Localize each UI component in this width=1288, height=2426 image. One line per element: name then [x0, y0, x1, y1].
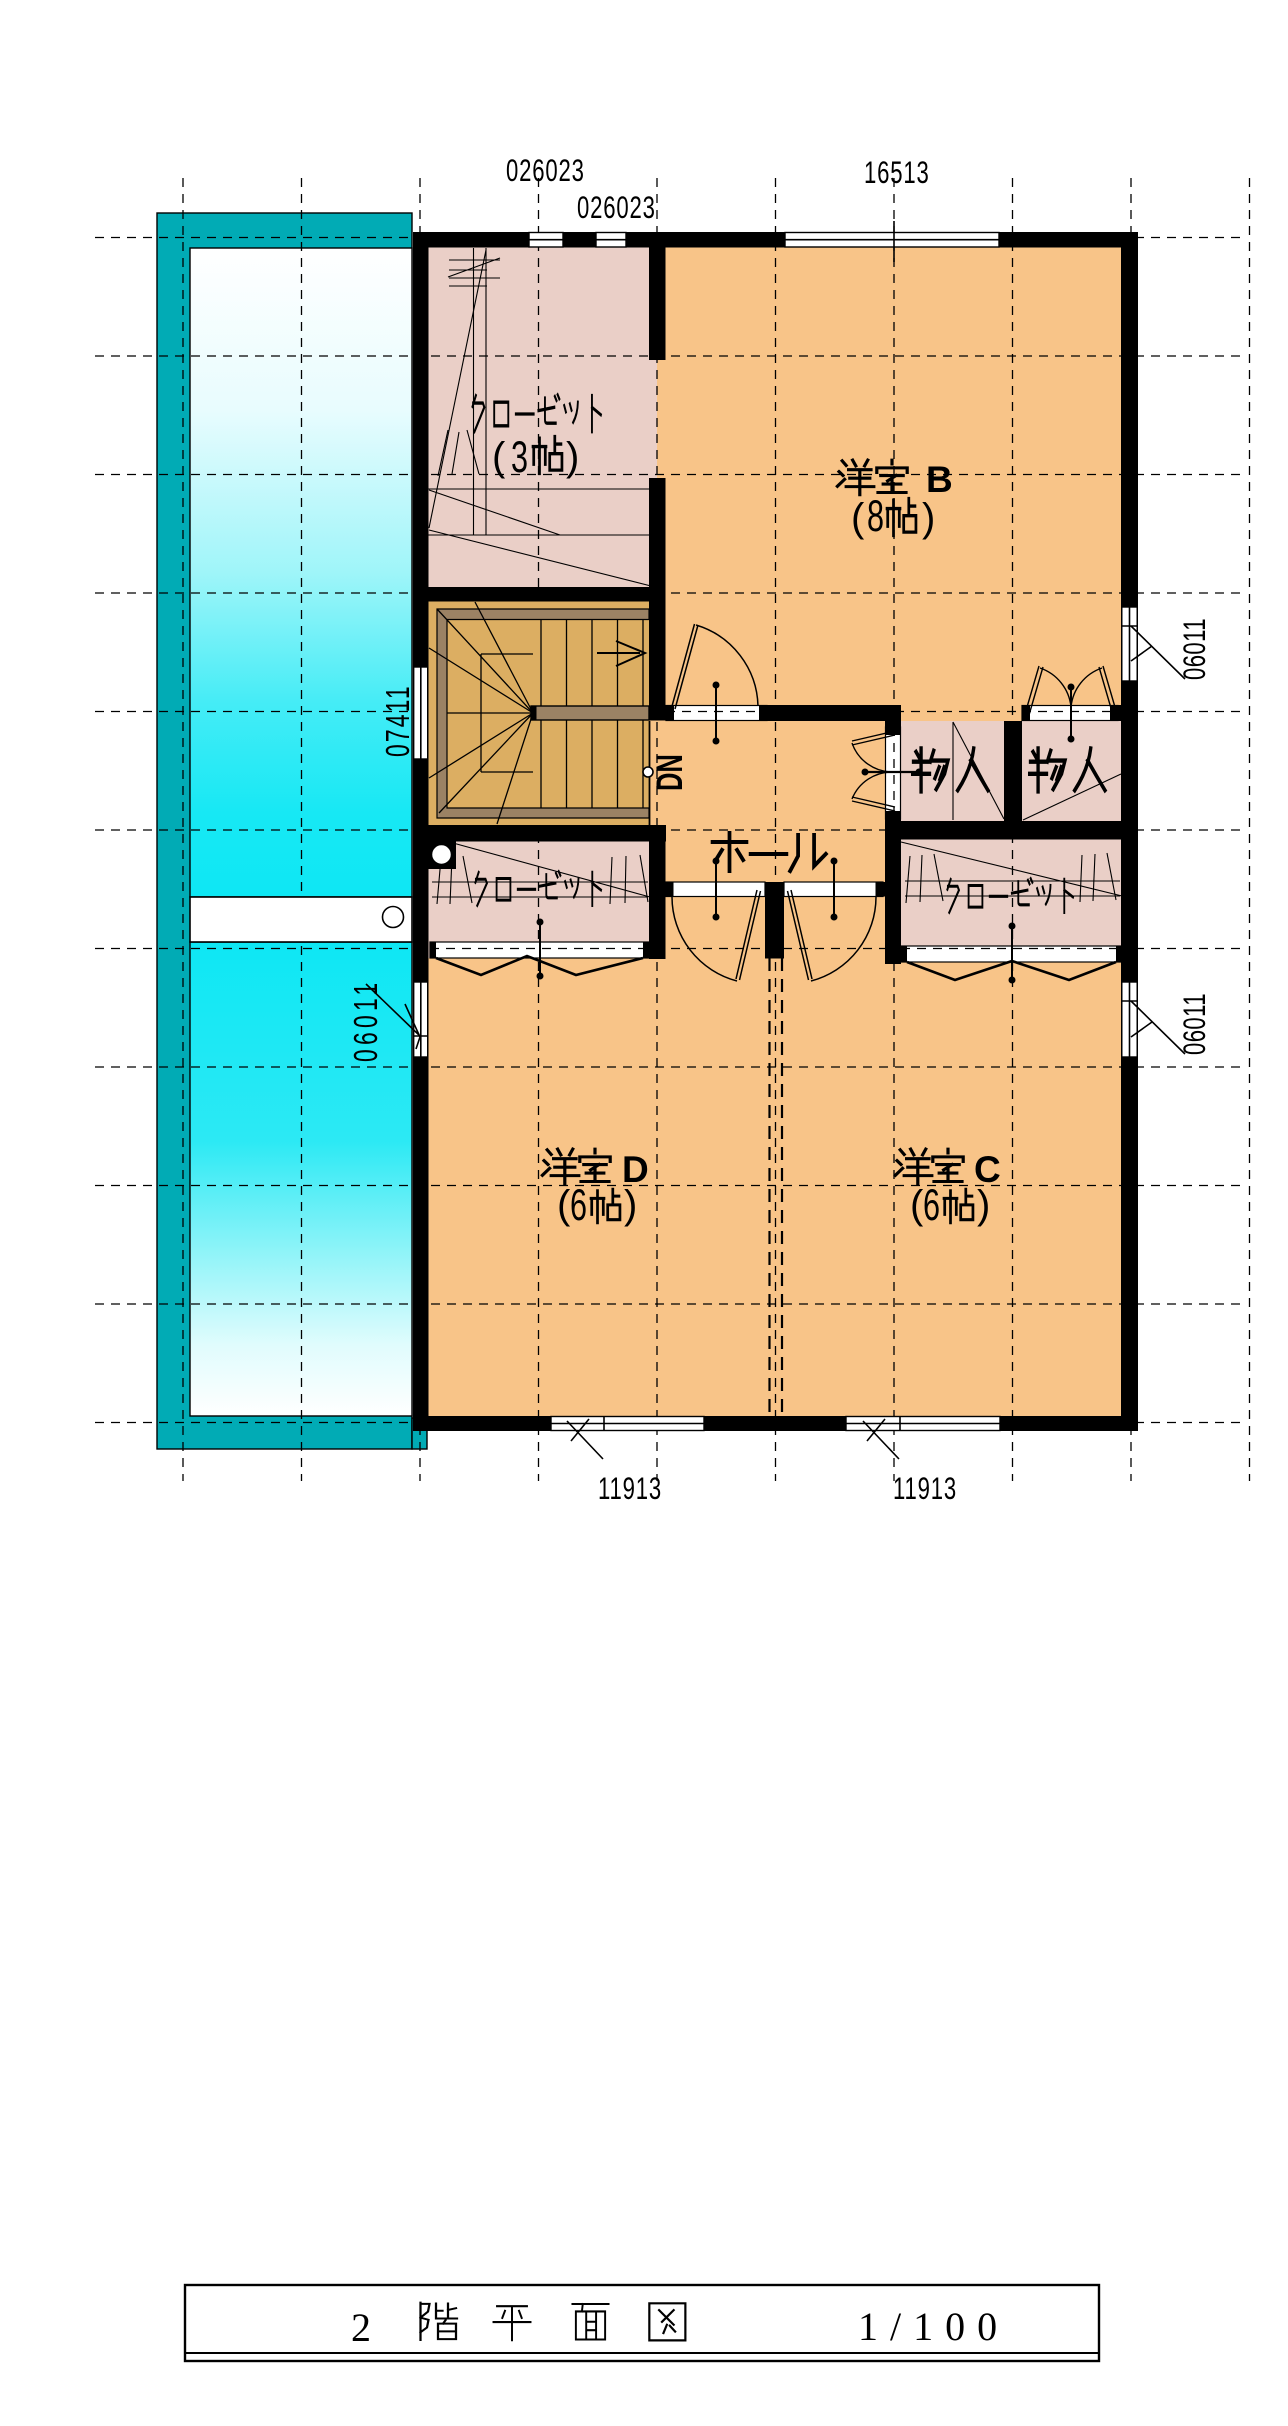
svg-text:6: 6 [923, 1182, 940, 1231]
svg-text:06011: 06011 [1176, 993, 1212, 1055]
svg-text:6: 6 [570, 1182, 587, 1231]
svg-text:026023: 026023 [506, 152, 585, 188]
svg-text:3: 3 [511, 434, 528, 483]
svg-text:(: ( [557, 1183, 571, 1227]
svg-text:2: 2 [351, 2305, 371, 2350]
svg-text:): ) [624, 1183, 637, 1227]
svg-text:06011: 06011 [1176, 618, 1212, 680]
svg-text:8: 8 [867, 491, 884, 541]
svg-text:11913: 11913 [598, 1470, 662, 1506]
svg-text:11913: 11913 [893, 1470, 957, 1506]
svg-text:DN: DN [648, 754, 690, 791]
svg-text:07411: 07411 [380, 684, 417, 757]
svg-text:): ) [566, 435, 579, 479]
svg-text:(: ( [851, 496, 865, 540]
svg-text:(: ( [492, 435, 506, 479]
svg-text:1/100: 1/100 [858, 2304, 1009, 2349]
svg-text:B: B [926, 459, 953, 500]
svg-text:(: ( [910, 1183, 924, 1227]
svg-text:16513: 16513 [864, 154, 930, 190]
svg-text:): ) [922, 496, 935, 540]
svg-text:026023: 026023 [577, 189, 656, 225]
svg-text:06011: 06011 [348, 979, 385, 1062]
svg-text:): ) [977, 1183, 990, 1227]
